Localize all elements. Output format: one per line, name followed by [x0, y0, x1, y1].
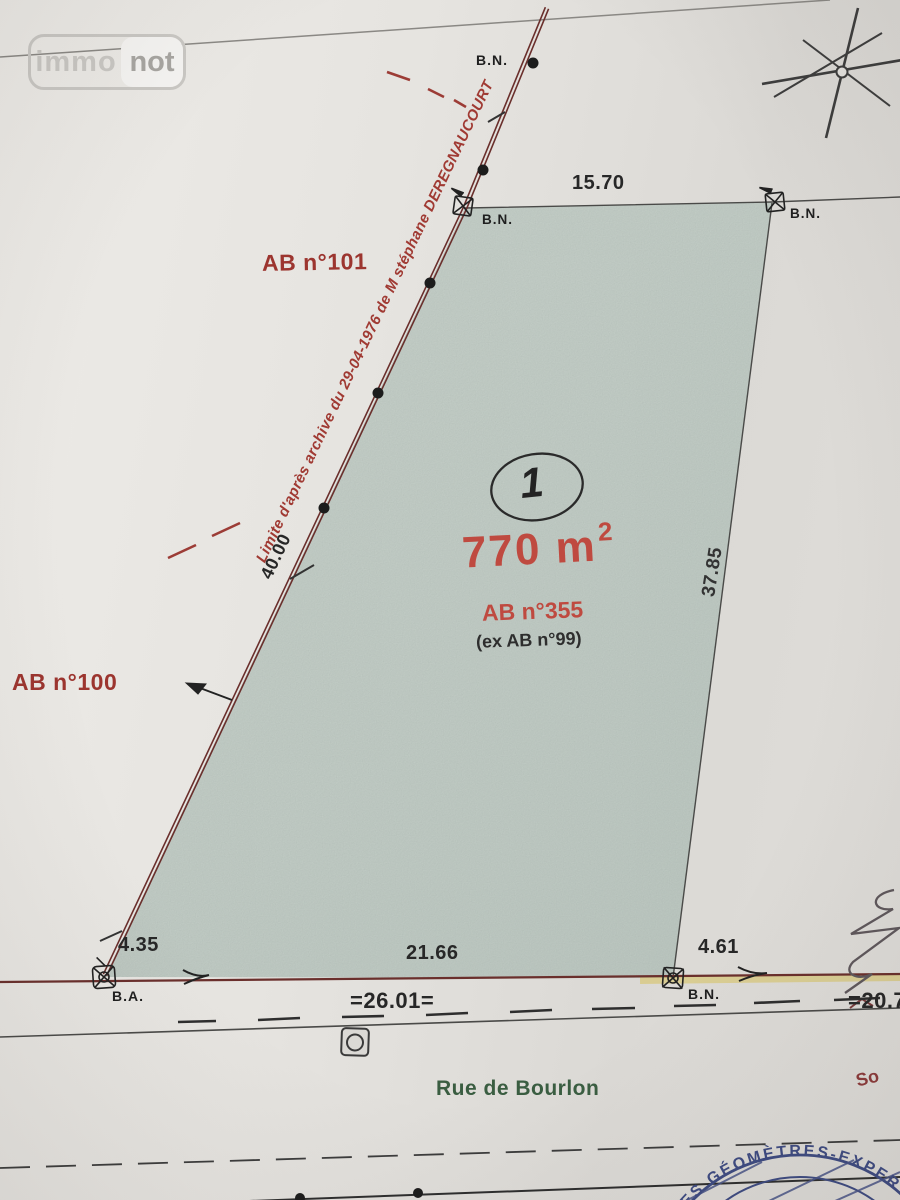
bn-marker-label-top-right: B.N. — [790, 206, 821, 221]
parcel-reference: AB n°355 — [482, 596, 584, 627]
dimension-front-total: =26.01= — [350, 988, 434, 1014]
parcel-former-reference: (ex AB n°99) — [476, 628, 582, 653]
adjacent-parcel-north-label: AB n°101 — [262, 248, 368, 277]
parcel-number: 1 — [518, 458, 546, 508]
street-name: Rue de Bourlon — [436, 1077, 599, 1101]
stamp-text: E DES GÉOMÈTRES-EXPER — [657, 1143, 900, 1200]
parcel-area-value: 770 m — [461, 522, 598, 578]
parcel-texture — [90, 190, 790, 990]
dimension-right-total: =20.7 — [848, 988, 900, 1014]
parcel-area: 770 m2 — [461, 520, 615, 579]
svg-text:E DES GÉOMÈTRES-EXPER: E DES GÉOMÈTRES-EXPER — [657, 1143, 900, 1200]
dimension-front-left: 4.35 — [118, 934, 159, 957]
survey-point-dot — [295, 1193, 305, 1200]
direction-arrow — [186, 683, 232, 700]
logo-immo-text: immo — [31, 37, 121, 87]
adjacent-parcel-west-label: AB n°100 — [12, 669, 117, 696]
bn-marker-label-upper: B.N. — [476, 52, 508, 68]
compass-rose-icon — [762, 8, 900, 138]
dimension-top: 15.70 — [572, 172, 625, 195]
bn-marker-label-top-left: B.N. — [482, 212, 513, 227]
street-edge-line — [0, 1008, 900, 1037]
pavement-dashes — [178, 998, 880, 1022]
manhole-icon — [341, 1028, 369, 1056]
parcel-area-exponent: 2 — [597, 516, 615, 547]
immonot-logo: immo not — [28, 34, 186, 90]
surveyor-stamp-icon: E DES GÉOMÈTRES-EXPER — [650, 1143, 900, 1200]
bn-marker-label-bottom: B.N. — [688, 986, 720, 1002]
dimension-front-right: 4.61 — [698, 936, 739, 959]
survey-plan-page: E DES GÉOMÈTRES-EXPER immo not B.N. 15.7… — [0, 0, 900, 1200]
dimension-front-middle: 21.66 — [406, 942, 459, 965]
logo-not-text: not — [121, 37, 183, 87]
ba-marker-label: B.A. — [112, 988, 144, 1004]
survey-point-dot — [413, 1188, 423, 1198]
